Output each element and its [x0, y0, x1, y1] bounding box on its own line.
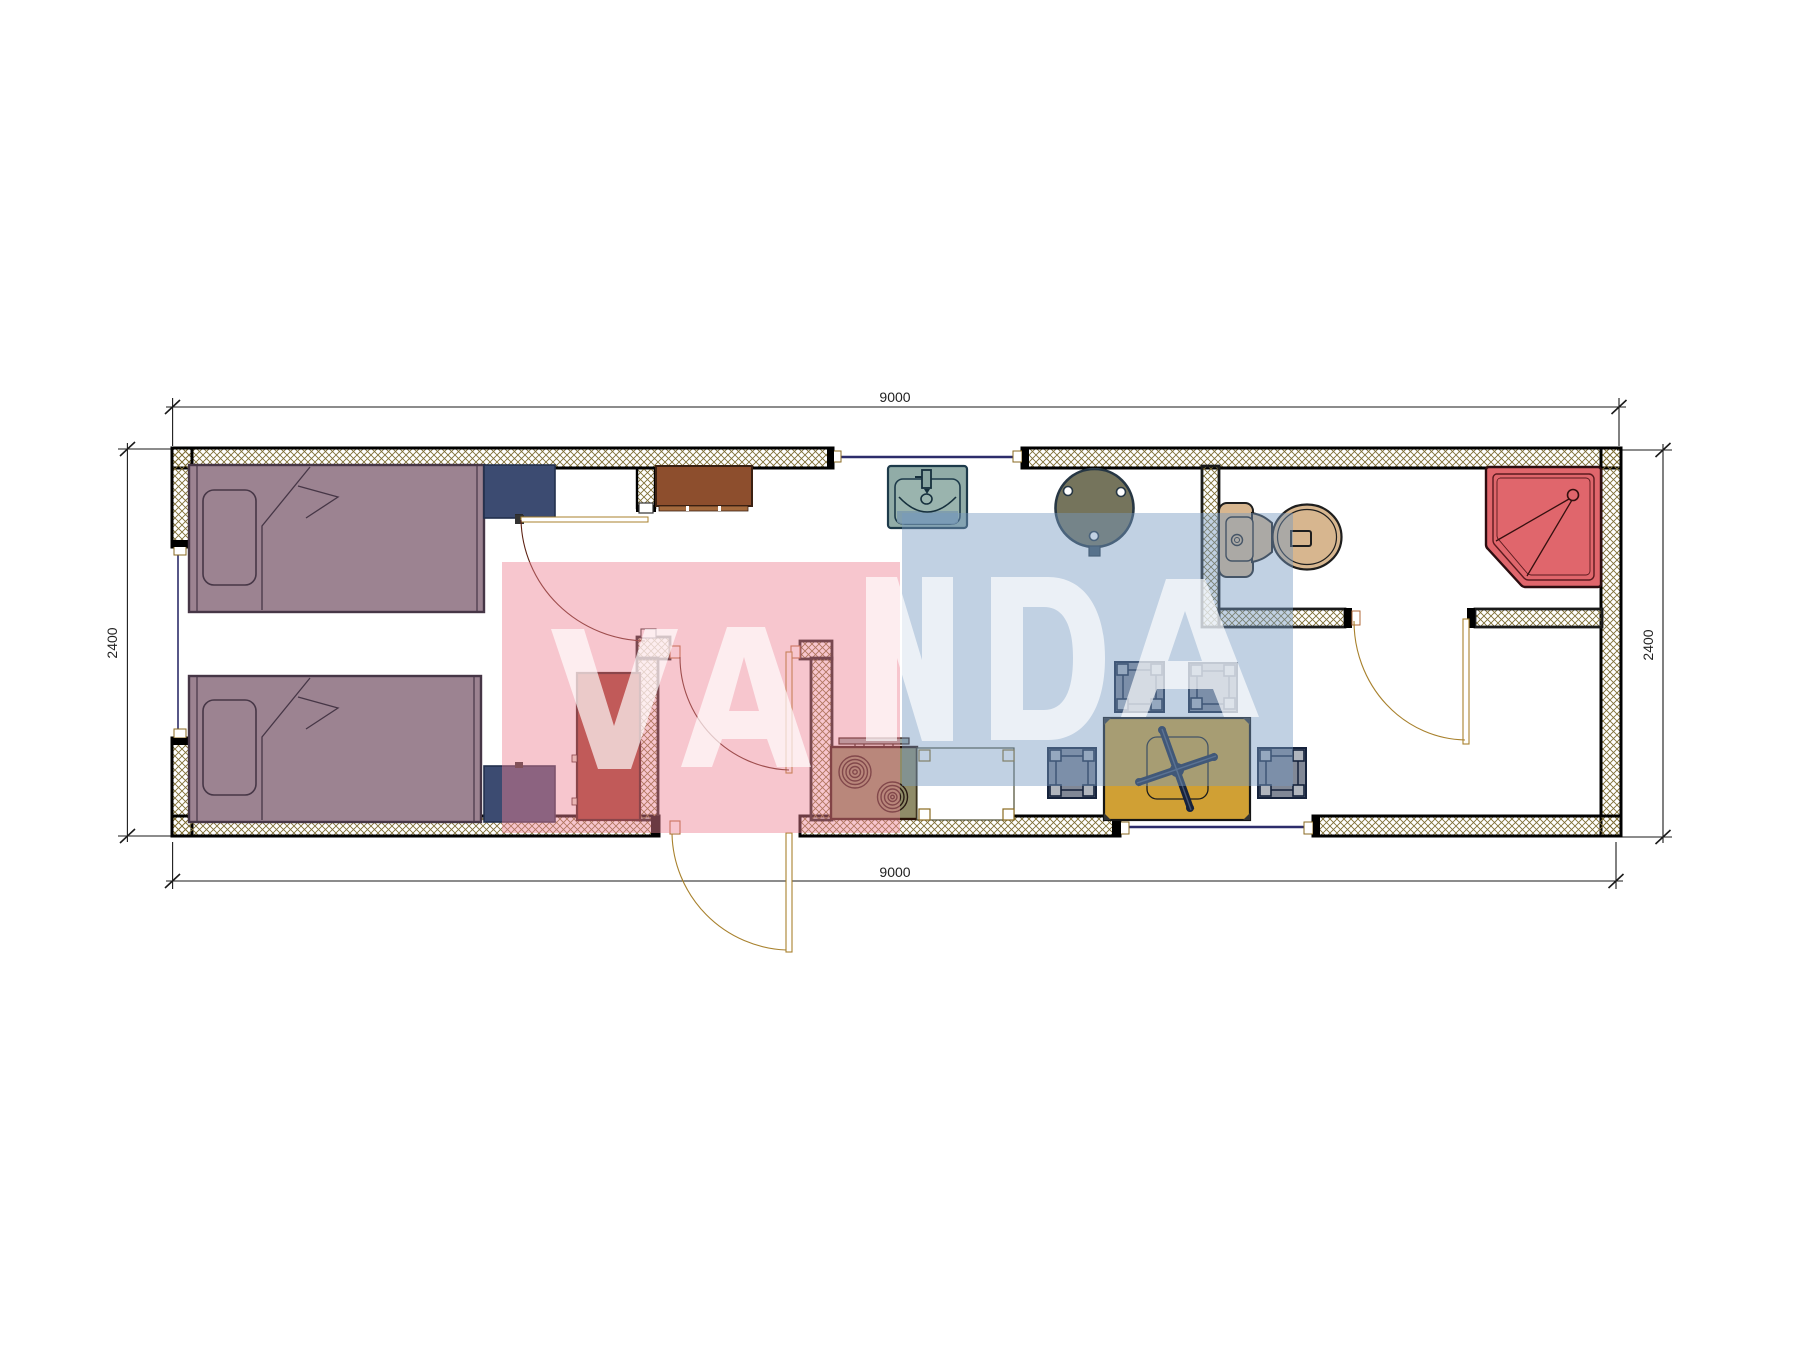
svg-text:9000: 9000 — [879, 389, 910, 405]
svg-text:2400: 2400 — [104, 627, 120, 658]
svg-text:2400: 2400 — [1640, 629, 1656, 660]
svg-text:9000: 9000 — [879, 864, 910, 880]
